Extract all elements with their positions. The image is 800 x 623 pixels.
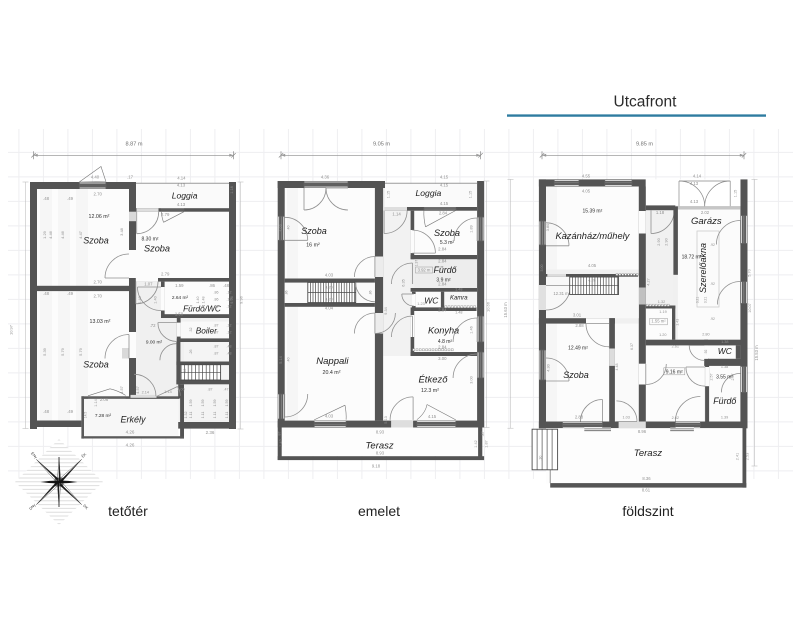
svg-text:15.53 m: 15.53 m [754, 345, 759, 361]
svg-text:9.00 m²: 9.00 m² [146, 340, 163, 346]
svg-text:4.26: 4.26 [126, 430, 135, 435]
svg-text:8.30 m²: 8.30 m² [142, 237, 159, 243]
svg-text:Loggia: Loggia [172, 191, 198, 201]
svg-text:1.03: 1.03 [623, 416, 630, 420]
svg-text:1.07: 1.07 [144, 282, 153, 287]
svg-text:1.87: 1.87 [485, 440, 489, 447]
svg-text:9.18: 9.18 [372, 464, 381, 469]
svg-text:tetőtér: tetőtér [108, 503, 148, 519]
svg-text:2.80: 2.80 [702, 333, 709, 337]
svg-text:2.84: 2.84 [439, 211, 448, 216]
svg-text:.12: .12 [227, 298, 232, 302]
svg-text:2.84: 2.84 [438, 259, 447, 264]
svg-text:4.27: 4.27 [647, 278, 651, 285]
svg-text:14.5: 14.5 [84, 412, 88, 419]
svg-text:1.11: 1.11 [213, 412, 217, 419]
svg-text:4.36: 4.36 [321, 175, 330, 180]
svg-text:4.55: 4.55 [582, 173, 591, 178]
svg-text:16 m²: 16 m² [306, 243, 320, 249]
svg-text:1.40: 1.40 [196, 297, 200, 304]
svg-text:.49: .49 [67, 291, 74, 296]
svg-text:.12: .12 [227, 305, 232, 309]
svg-text:Fürdő: Fürdő [713, 396, 736, 406]
svg-text:.92: .92 [710, 317, 715, 321]
svg-text:10.66: 10.66 [486, 301, 491, 312]
svg-text:8.96: 8.96 [638, 429, 647, 434]
svg-text:1.19: 1.19 [659, 310, 666, 314]
svg-text:2.84: 2.84 [438, 247, 447, 252]
svg-text:Nappali: Nappali [316, 356, 349, 367]
svg-text:.32: .32 [189, 328, 193, 333]
svg-text:.87: .87 [214, 331, 219, 335]
svg-text:9.96: 9.96 [239, 295, 244, 304]
svg-text:.86: .86 [285, 290, 289, 295]
svg-text:5.79: 5.79 [78, 347, 83, 356]
svg-text:1.40: 1.40 [138, 296, 142, 303]
svg-text:1.37: 1.37 [415, 260, 419, 267]
svg-text:.48: .48 [227, 352, 232, 356]
svg-text:.87: .87 [481, 432, 485, 437]
svg-text:4.14: 4.14 [177, 176, 186, 181]
svg-text:4.46: 4.46 [60, 230, 65, 239]
svg-text:1.89: 1.89 [470, 225, 474, 232]
svg-text:1.48: 1.48 [455, 288, 462, 292]
svg-text:4.03: 4.03 [325, 414, 334, 419]
svg-text:.48: .48 [223, 283, 230, 288]
svg-text:.40: .40 [287, 358, 291, 363]
svg-text:Szerelőakna: Szerelőakna [698, 243, 708, 293]
svg-text:12.49 m²: 12.49 m² [568, 346, 588, 352]
svg-text:4.04: 4.04 [325, 306, 334, 311]
svg-text:4.26: 4.26 [126, 443, 135, 448]
svg-text:.48: .48 [227, 345, 232, 349]
svg-text:1.38: 1.38 [721, 340, 728, 344]
svg-text:4.13: 4.13 [177, 182, 186, 187]
svg-text:1.40: 1.40 [154, 296, 158, 303]
svg-text:1.18: 1.18 [656, 210, 665, 215]
svg-text:4.30: 4.30 [547, 364, 551, 371]
svg-text:4.20: 4.20 [325, 298, 332, 302]
svg-text:.86: .86 [209, 283, 216, 288]
svg-text:.49: .49 [67, 196, 74, 201]
svg-text:5.39: 5.39 [42, 347, 47, 356]
svg-text:2.90: 2.90 [665, 238, 669, 245]
svg-text:3.00: 3.00 [438, 356, 447, 361]
svg-text:1.48: 1.48 [202, 297, 206, 304]
svg-text:10.97: 10.97 [9, 324, 14, 335]
svg-text:Garázs: Garázs [691, 216, 722, 227]
svg-text:1.43: 1.43 [676, 319, 680, 326]
svg-text:1.42: 1.42 [279, 439, 283, 446]
svg-text:9.34: 9.34 [384, 307, 388, 314]
svg-text:1.23: 1.23 [417, 302, 424, 306]
svg-text:2.57: 2.57 [709, 374, 713, 381]
svg-text:1.18: 1.18 [230, 186, 234, 193]
svg-text:emelet: emelet [358, 503, 400, 519]
svg-text:1.11: 1.11 [225, 412, 229, 419]
svg-text:2.84: 2.84 [438, 281, 447, 286]
svg-text:.87: .87 [214, 352, 219, 356]
svg-text:1.59: 1.59 [225, 400, 229, 407]
svg-text:1.48: 1.48 [455, 311, 462, 315]
svg-text:1.14: 1.14 [392, 212, 401, 217]
svg-text:1.50: 1.50 [175, 311, 184, 316]
svg-text:4.14: 4.14 [693, 173, 702, 178]
svg-text:Fürdő: Fürdő [434, 265, 457, 275]
svg-text:2.90: 2.90 [657, 238, 661, 245]
svg-text:.86: .86 [214, 298, 219, 302]
svg-text:.90: .90 [539, 456, 543, 461]
svg-text:2.79: 2.79 [161, 212, 170, 217]
svg-text:12.3 m²: 12.3 m² [421, 388, 439, 394]
svg-text:2.61: 2.61 [672, 345, 679, 349]
svg-text:13.03 m²: 13.03 m² [90, 319, 111, 325]
svg-text:.86: .86 [214, 305, 219, 309]
svg-text:2.14: 2.14 [142, 391, 149, 395]
svg-text:10.07: 10.07 [748, 303, 752, 313]
svg-text:2.88: 2.88 [575, 323, 584, 328]
svg-text:5.70: 5.70 [748, 269, 752, 276]
svg-text:15.63 m: 15.63 m [503, 302, 508, 318]
svg-text:.92: .92 [704, 350, 708, 355]
svg-text:4.13: 4.13 [177, 202, 186, 207]
svg-text:3.00: 3.00 [470, 376, 474, 383]
svg-text:4.13: 4.13 [690, 181, 699, 186]
svg-text:2.36: 2.36 [206, 430, 215, 435]
svg-text:1.15: 1.15 [387, 191, 391, 198]
svg-text:1.00: 1.00 [177, 387, 184, 391]
svg-text:1.14: 1.14 [164, 390, 171, 394]
svg-text:.92: .92 [710, 282, 715, 286]
svg-text:4.20: 4.20 [325, 286, 332, 290]
svg-text:3.92 m: 3.92 m [418, 268, 431, 273]
svg-text:8.93: 8.93 [376, 430, 385, 435]
svg-text:1.55 m²: 1.55 m² [651, 319, 666, 324]
svg-text:Erkély: Erkély [120, 415, 146, 425]
svg-text:2.84: 2.84 [438, 307, 447, 312]
svg-text:1.59: 1.59 [213, 400, 217, 407]
svg-text:4.15: 4.15 [440, 182, 449, 187]
svg-text:4.15: 4.15 [440, 175, 449, 180]
svg-text:1.32: 1.32 [184, 412, 188, 419]
svg-text:.12: .12 [227, 324, 232, 328]
svg-text:1.59: 1.59 [175, 283, 184, 288]
svg-text:1.42: 1.42 [474, 440, 478, 447]
svg-text:4.05: 4.05 [582, 188, 591, 193]
svg-text:4.15: 4.15 [440, 201, 449, 206]
svg-text:1.14: 1.14 [94, 399, 98, 406]
svg-text:12.06 m²: 12.06 m² [89, 214, 110, 220]
svg-text:1.46: 1.46 [470, 326, 474, 333]
svg-text:1.11: 1.11 [189, 412, 193, 419]
svg-text:Szoba: Szoba [144, 244, 170, 254]
svg-text:2.06: 2.06 [100, 397, 109, 402]
svg-text:12.31 m: 12.31 m [553, 291, 569, 296]
svg-text:földszint: földszint [622, 503, 673, 519]
svg-text:7.28 m²: 7.28 m² [95, 413, 112, 419]
svg-text:.49: .49 [67, 409, 74, 414]
svg-text:2.57: 2.57 [731, 374, 735, 381]
svg-text:8.61: 8.61 [642, 488, 651, 493]
svg-text:1.59: 1.59 [201, 400, 205, 407]
svg-text:.40: .40 [287, 226, 291, 231]
svg-text:Loggia: Loggia [415, 188, 441, 198]
svg-text:.48: .48 [43, 291, 50, 296]
svg-text:.87: .87 [214, 324, 219, 328]
svg-text:8.36: 8.36 [642, 476, 651, 481]
svg-text:.72: .72 [150, 323, 157, 328]
svg-text:4.03: 4.03 [325, 273, 334, 278]
svg-text:2.62: 2.62 [672, 416, 679, 420]
svg-text:4.05: 4.05 [588, 263, 597, 268]
svg-text:1.38: 1.38 [721, 365, 728, 369]
svg-text:1.15: 1.15 [734, 190, 738, 197]
svg-text:.87: .87 [214, 345, 219, 349]
svg-text:9.05 m: 9.05 m [373, 142, 390, 148]
svg-text:5.3 m²: 5.3 m² [440, 240, 455, 246]
svg-text:4.26: 4.26 [588, 279, 595, 283]
svg-text:8.87 m: 8.87 m [125, 142, 142, 148]
svg-text:4.40: 4.40 [91, 175, 100, 180]
svg-text:1.20: 1.20 [659, 333, 666, 337]
svg-text:6.37: 6.37 [630, 343, 634, 350]
svg-text:5.79: 5.79 [60, 347, 65, 356]
svg-text:4.46: 4.46 [48, 230, 53, 239]
svg-text:2.70: 2.70 [94, 191, 103, 196]
svg-text:4.48: 4.48 [615, 364, 619, 371]
svg-text:4.57: 4.57 [135, 385, 140, 394]
svg-text:Szoba: Szoba [83, 360, 109, 370]
svg-text:.48: .48 [43, 409, 50, 414]
svg-text:5.13: 5.13 [384, 416, 388, 423]
svg-text:.87: .87 [278, 432, 282, 437]
svg-text:3.80: 3.80 [546, 224, 550, 231]
svg-text:3.21: 3.21 [704, 297, 708, 304]
svg-text:Szoba: Szoba [83, 236, 109, 246]
svg-text:1.59: 1.59 [189, 400, 193, 407]
svg-text:Konyha: Konyha [428, 326, 459, 336]
svg-text:4.13: 4.13 [690, 199, 699, 204]
svg-text:2.70: 2.70 [94, 280, 103, 285]
svg-text:.26: .26 [189, 350, 193, 355]
svg-text:3.21: 3.21 [696, 297, 700, 304]
svg-text:4.47: 4.47 [78, 230, 83, 239]
svg-text:.17: .17 [127, 175, 134, 180]
svg-text:2.64 m²: 2.64 m² [172, 295, 189, 301]
svg-text:15.39 m²: 15.39 m² [583, 209, 603, 215]
svg-text:4.03: 4.03 [279, 224, 283, 231]
svg-text:.92: .92 [710, 243, 715, 247]
svg-text:2.41: 2.41 [735, 453, 739, 460]
svg-text:3.01: 3.01 [573, 312, 582, 317]
svg-text:1.32: 1.32 [658, 300, 665, 304]
svg-text:1.29: 1.29 [42, 230, 47, 239]
svg-text:.86: .86 [369, 290, 373, 295]
svg-text:1.11: 1.11 [201, 412, 205, 419]
svg-text:5.14: 5.14 [279, 356, 283, 363]
svg-text:3.00: 3.00 [540, 265, 544, 272]
svg-text:3.48: 3.48 [119, 227, 124, 236]
svg-text:Szoba: Szoba [301, 226, 327, 236]
svg-text:.46: .46 [183, 369, 187, 374]
svg-text:.12: .12 [227, 331, 232, 335]
svg-text:.86: .86 [214, 291, 219, 295]
svg-text:.87: .87 [208, 387, 213, 391]
svg-text:4.57: 4.57 [119, 385, 124, 394]
svg-text:Kamra: Kamra [450, 296, 468, 302]
svg-text:Szoba: Szoba [563, 370, 589, 380]
svg-text:20.4 m²: 20.4 m² [323, 370, 341, 376]
svg-text:2.53: 2.53 [746, 453, 750, 460]
svg-text:WC: WC [718, 346, 733, 356]
svg-text:9.85 m: 9.85 m [636, 142, 653, 148]
svg-text:4.15: 4.15 [428, 414, 437, 419]
svg-text:2.70: 2.70 [94, 293, 103, 298]
svg-text:2.79: 2.79 [161, 272, 170, 277]
svg-text:Étkező: Étkező [418, 375, 448, 386]
svg-text:2.88: 2.88 [575, 415, 584, 420]
svg-text:1.15: 1.15 [469, 191, 473, 198]
svg-text:.12: .12 [227, 291, 232, 295]
svg-text:6.35: 6.35 [402, 279, 406, 286]
svg-text:Kazánház/műhely: Kazánház/műhely [555, 231, 630, 241]
svg-text:2.02: 2.02 [701, 210, 710, 215]
svg-text:2.84: 2.84 [438, 344, 447, 349]
svg-text:Utcafront: Utcafront [614, 94, 678, 111]
svg-text:Terasz: Terasz [634, 448, 662, 459]
svg-text:WC: WC [424, 296, 439, 306]
svg-text:Szoba: Szoba [434, 228, 460, 238]
svg-text:.48: .48 [43, 196, 50, 201]
svg-text:.47: .47 [224, 387, 229, 391]
svg-text:8.93: 8.93 [376, 451, 385, 456]
svg-text:1.39: 1.39 [721, 416, 728, 420]
